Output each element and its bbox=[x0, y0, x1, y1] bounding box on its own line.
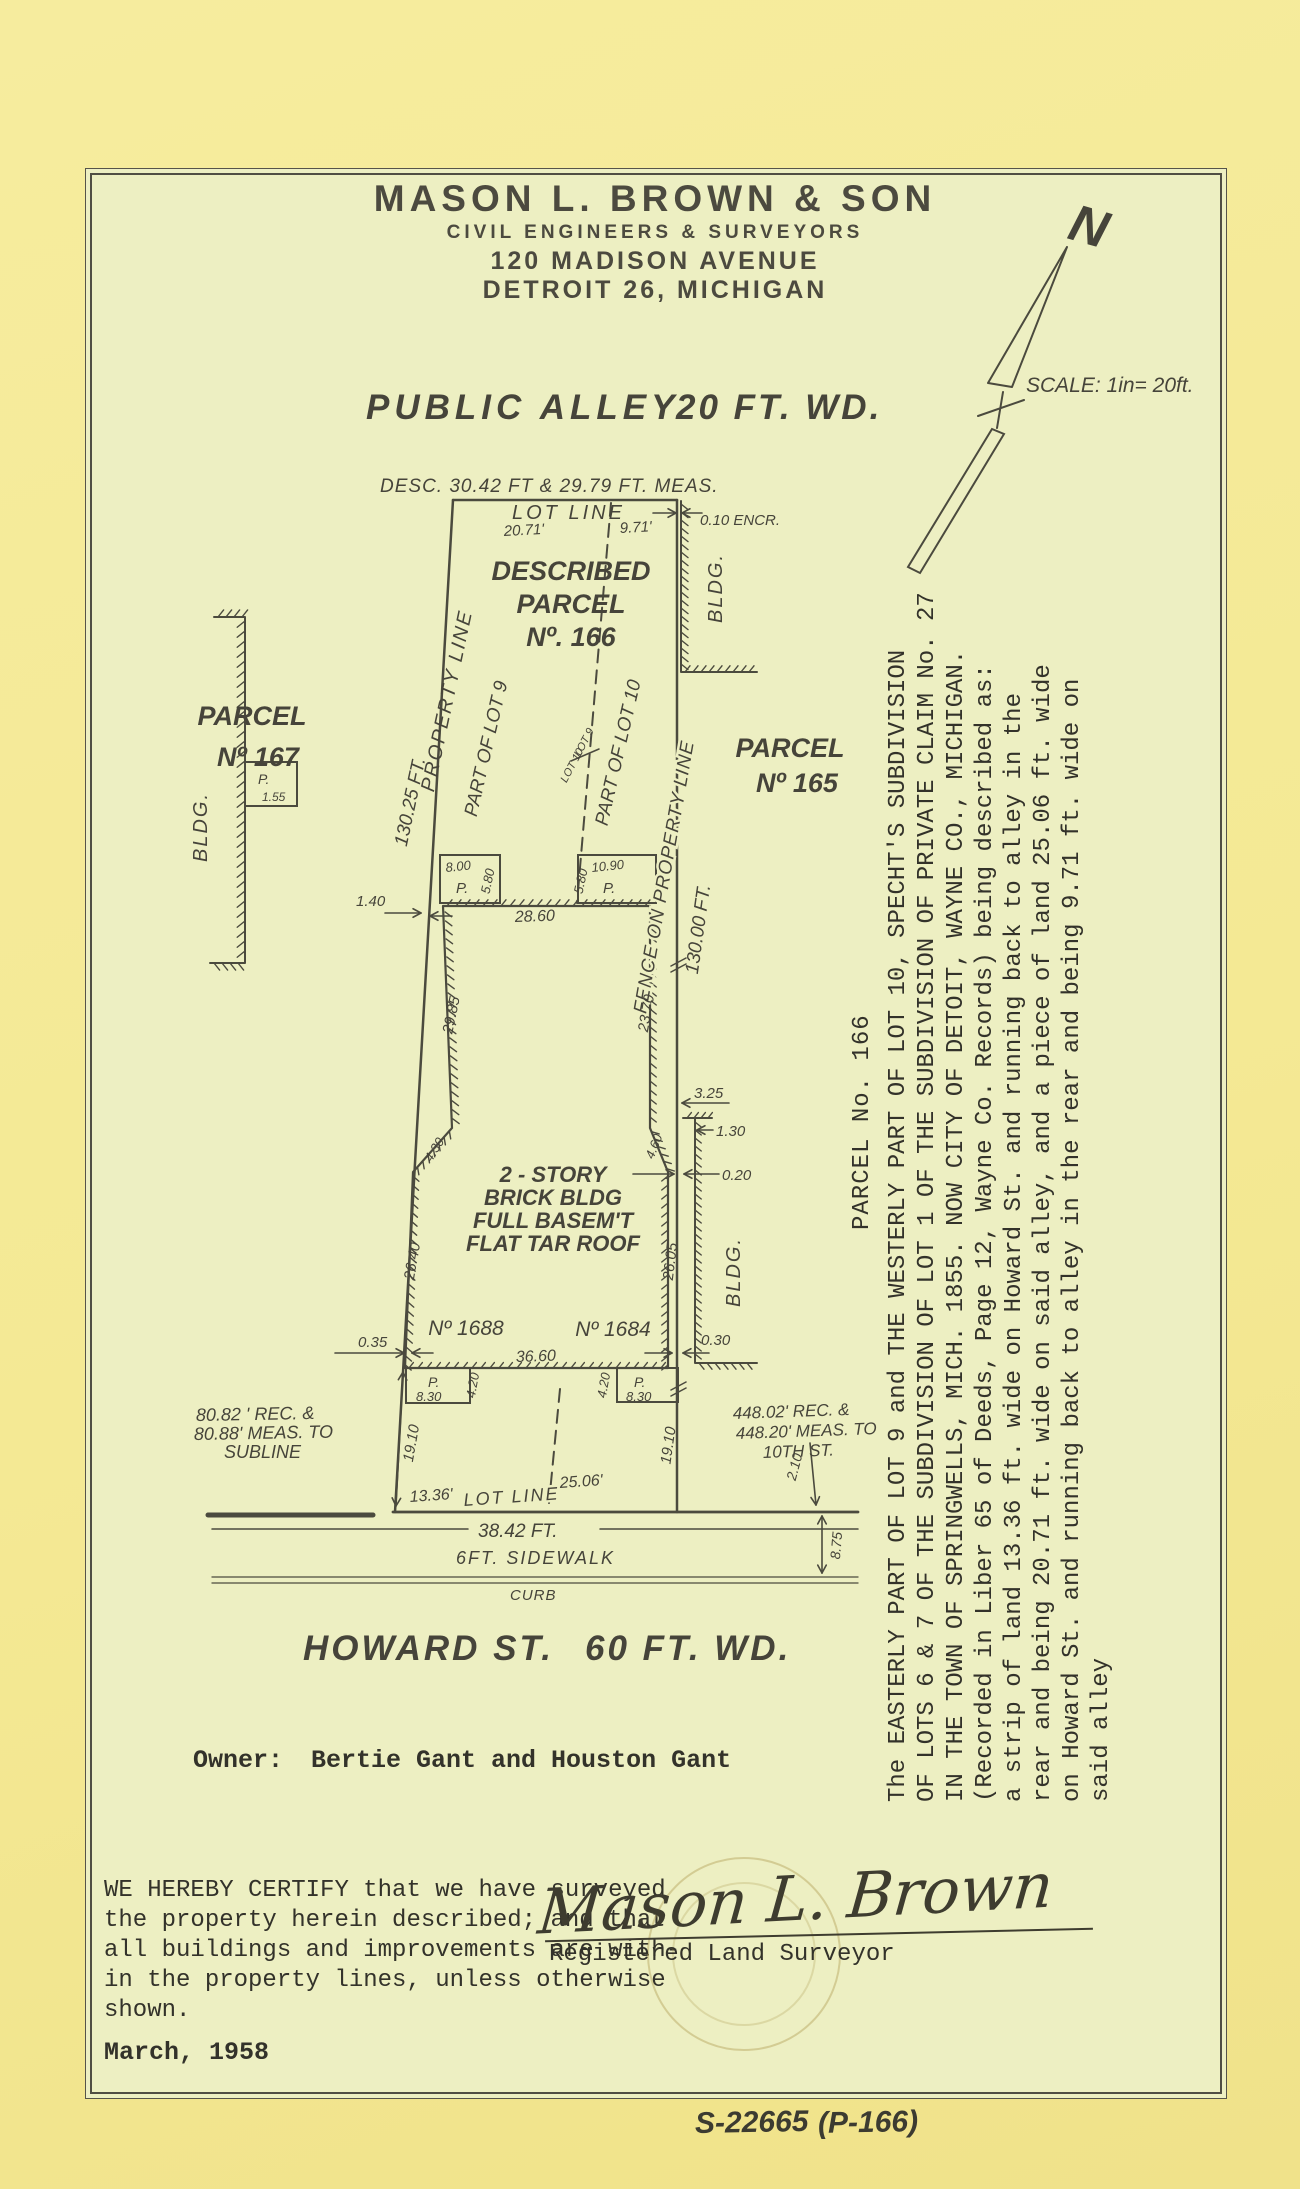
part-of-lot10-label: PART OF LOT 10 bbox=[592, 677, 646, 827]
porch-ne-width: 10.90 bbox=[591, 857, 626, 875]
hatch-tick bbox=[222, 963, 228, 970]
surveyor-title: Registered Land Surveyor bbox=[549, 1941, 895, 1968]
dim-36-60: 36.60 bbox=[516, 1348, 557, 1366]
hatch-tick bbox=[237, 791, 245, 797]
dim-1-40: 1.40 bbox=[356, 893, 386, 910]
rec-east-line1: 448.02' REC. & bbox=[732, 1400, 849, 1423]
hatch-tick bbox=[448, 984, 454, 989]
curb-label: CURB bbox=[510, 1587, 557, 1604]
building-desc-line4: FLAT TAR ROOF bbox=[466, 1231, 640, 1256]
encroachment-label: 0.10 ENCR. bbox=[700, 512, 780, 529]
hatch-tick bbox=[681, 624, 688, 630]
owner-line: Owner:Bertie Gant and Houston Gant bbox=[193, 1746, 759, 1775]
dim-25-06: 25.06' bbox=[558, 1472, 604, 1492]
hatch-tick bbox=[237, 731, 245, 737]
hatch-tick bbox=[681, 520, 688, 526]
rec-east-line2: 448.20' MEAS. TO bbox=[735, 1419, 876, 1443]
hatch-tick bbox=[681, 640, 688, 646]
hatch-tick bbox=[681, 632, 688, 638]
porch-ne-depth: 5.80 bbox=[571, 866, 591, 895]
hatch-tick bbox=[452, 1110, 458, 1115]
hatch-tick bbox=[237, 651, 245, 657]
hatch-tick bbox=[237, 621, 245, 627]
hatch-tick bbox=[681, 560, 688, 566]
hatch-tick bbox=[681, 536, 688, 542]
hatch-tick bbox=[681, 552, 688, 558]
hatch-tick bbox=[450, 1056, 456, 1061]
hatch-tick bbox=[237, 891, 245, 897]
dim-1-30: 1.30 bbox=[716, 1123, 746, 1140]
hatch-tick bbox=[238, 963, 244, 970]
hatch-tick bbox=[681, 504, 688, 510]
dim-38-42: 38.42 FT. bbox=[478, 1521, 558, 1542]
desc-meas-label: DESC. 30.42 FT & 29.79 FT. MEAS. bbox=[380, 476, 719, 497]
dim-29-85: 29.85 bbox=[439, 994, 464, 1036]
bldg-ne-label: BLDG. bbox=[705, 553, 727, 623]
hatch-tick bbox=[451, 1074, 457, 1079]
bldg-se-label: BLDG. bbox=[723, 1237, 745, 1307]
parcel-165-line1: PARCEL bbox=[735, 733, 844, 763]
owner-name: Bertie Gant and Houston Gant bbox=[311, 1746, 731, 1775]
hatch-tick bbox=[237, 631, 245, 637]
hatch-tick bbox=[237, 931, 245, 937]
described-parcel-line1: DESCRIBED bbox=[491, 556, 650, 586]
hatch-tick bbox=[237, 951, 245, 957]
hatch-tick bbox=[237, 671, 245, 677]
hatch-tick bbox=[237, 861, 245, 867]
hatch-tick bbox=[230, 963, 236, 970]
hatch-tick bbox=[237, 841, 245, 847]
hatch-tick bbox=[451, 1083, 457, 1088]
hatch-tick bbox=[234, 610, 240, 617]
hatch-tick bbox=[681, 616, 688, 622]
hatch-tick bbox=[237, 801, 245, 807]
porch-nw-label: P. bbox=[456, 880, 468, 897]
hatch-tick bbox=[447, 966, 453, 971]
job-number: S-22665 bbox=[695, 2105, 809, 2141]
hatch-tick bbox=[451, 1065, 457, 1070]
plat-drawing: DESC. 30.42 FT & 29.79 FT. MEAS. LOT LIN… bbox=[120, 455, 890, 1665]
hatch-tick bbox=[214, 963, 220, 970]
dim-20-71: 20.71' bbox=[502, 521, 545, 540]
porch-west-dim: 1.55 bbox=[262, 790, 286, 804]
scale-note: SCALE: 1in= 20ft. bbox=[1026, 374, 1194, 397]
hatch-tick bbox=[681, 528, 688, 534]
porch-ne-label: P. bbox=[603, 880, 615, 897]
porch-nw-depth: 5.80 bbox=[478, 866, 498, 895]
hatch-tick bbox=[237, 811, 245, 817]
house-number-1684: Nº 1684 bbox=[575, 1318, 650, 1341]
dim-28-60: 28.60 bbox=[514, 908, 556, 926]
arrow-head bbox=[816, 1497, 819, 1505]
dim-130-00: 130.00 FT. bbox=[682, 883, 715, 975]
hatch-tick bbox=[681, 568, 688, 574]
page-number: (P-166) bbox=[818, 2105, 919, 2141]
hatch-tick bbox=[450, 1038, 456, 1043]
hatch-tick bbox=[418, 1167, 419, 1175]
porch-sw-label: P. bbox=[428, 1374, 439, 1390]
dim-0-35: 0.35 bbox=[358, 1334, 388, 1351]
hatch-tick bbox=[446, 939, 452, 944]
hatch-tick bbox=[237, 691, 245, 697]
hatch-tick bbox=[423, 1161, 424, 1169]
hatch-tick bbox=[237, 821, 245, 827]
hatch-tick bbox=[452, 1092, 458, 1097]
part-of-lot9-label: PART OF LOT 9 bbox=[461, 679, 513, 819]
hatch-tick bbox=[681, 608, 688, 614]
dim-8-75: 8.75 bbox=[827, 1531, 845, 1560]
bldg-west-label: BLDG. bbox=[190, 792, 212, 862]
described-parcel-line2: PARCEL bbox=[516, 589, 625, 619]
legal-description-text: The EASTERLY PART OF LOT 9 and THE WESTE… bbox=[884, 512, 1116, 1802]
hatch-tick bbox=[452, 1101, 458, 1106]
rec-west-line2: 80.88' MEAS. TO bbox=[194, 1422, 333, 1444]
house-number-1688: Nº 1688 bbox=[428, 1317, 504, 1340]
parcel-166-label: PARCEL No. 166 bbox=[849, 930, 876, 1230]
rec-west-line3: SUBLINE bbox=[224, 1442, 302, 1462]
curb-lines bbox=[212, 1577, 858, 1583]
lot-line-bottom-label: LOT LINE bbox=[463, 1483, 560, 1510]
parcel-165-line2: Nº 165 bbox=[756, 768, 839, 798]
lot10-fraction-label: LOT 10 bbox=[558, 746, 586, 785]
building-desc-line3: FULL BASEM'T bbox=[473, 1208, 635, 1233]
dim-3-25: 3.25 bbox=[694, 1085, 724, 1102]
hatch-tick bbox=[237, 921, 245, 927]
dim-9-71: 9.71' bbox=[619, 518, 653, 537]
howard-street-width-label: 60 FT. WD. bbox=[585, 1629, 791, 1668]
hatch-tick bbox=[226, 610, 232, 617]
hatch-tick bbox=[237, 901, 245, 907]
hatch-tick bbox=[237, 871, 245, 877]
dimension-arrow bbox=[396, 1372, 403, 1506]
hatch-tick bbox=[237, 781, 245, 787]
certification-date: March, 1958 bbox=[104, 2038, 269, 2067]
hatch-tick bbox=[446, 948, 452, 953]
hatch-tick bbox=[453, 1119, 459, 1124]
hatch-tick bbox=[681, 576, 688, 582]
described-parcel-line3: Nº. 166 bbox=[526, 622, 616, 652]
hatch-tick bbox=[681, 592, 688, 598]
hatch-tick bbox=[681, 656, 688, 662]
hatch-tick bbox=[450, 1047, 456, 1052]
porch-se-label: P. bbox=[634, 1374, 645, 1390]
dim-0-30: 0.30 bbox=[701, 1332, 731, 1349]
dim-0-20: 0.20 bbox=[722, 1167, 752, 1184]
hatch-tick bbox=[237, 641, 245, 647]
parcel-167-line2: Nº 167 bbox=[217, 742, 301, 772]
parcel-167-line1: PARCEL bbox=[197, 701, 306, 731]
neighbor-building-west-wall bbox=[210, 617, 245, 963]
hatch-tick bbox=[681, 544, 688, 550]
neighbor-building-se-wall bbox=[683, 1118, 757, 1363]
north-arrow-ticks bbox=[978, 392, 1024, 428]
hatch-tick bbox=[237, 911, 245, 917]
building-desc-line2: BRICK BLDG bbox=[484, 1185, 622, 1210]
hatch-tick bbox=[681, 584, 688, 590]
hatch-tick bbox=[447, 957, 453, 962]
hatch-tick bbox=[681, 648, 688, 654]
hatch-tick bbox=[237, 831, 245, 837]
building-desc-line1: 2 - STORY bbox=[499, 1162, 609, 1187]
alley-width-label: 20 FT. WD. bbox=[676, 388, 882, 428]
porch-se-depth: 4.20 bbox=[594, 1371, 613, 1399]
alley-label: PUBLIC ALLEY bbox=[366, 388, 679, 428]
dim-13-36: 13.36' bbox=[409, 1486, 454, 1506]
dim-19-10-west: 19.10 bbox=[400, 1423, 423, 1464]
hatch-tick bbox=[237, 851, 245, 857]
dim-130-25: 130.25 FT. bbox=[391, 756, 430, 849]
hatch-tick bbox=[218, 610, 224, 617]
fence-tick-marks bbox=[671, 958, 686, 1396]
hatch-tick bbox=[237, 941, 245, 947]
hatch-tick bbox=[449, 1131, 450, 1139]
hatch-tick bbox=[447, 975, 453, 980]
porch-sw-depth: 4.20 bbox=[463, 1371, 482, 1399]
hatch-tick bbox=[681, 600, 688, 606]
north-arrow-shaft bbox=[988, 247, 1067, 387]
hatch-tick bbox=[237, 681, 245, 687]
porch-west-label: P. bbox=[258, 771, 269, 787]
hatch-tick bbox=[242, 610, 248, 617]
survey-document-page: MASON L. BROWN & SON CIVIL ENGINEERS & S… bbox=[0, 0, 1300, 2189]
hatch-tick bbox=[446, 930, 452, 935]
lot-division-dashed-line bbox=[549, 503, 611, 1503]
porch-nw-width: 8.00 bbox=[445, 857, 472, 875]
hatch-tick bbox=[445, 921, 451, 926]
howard-street-label: HOWARD ST. bbox=[303, 1629, 554, 1668]
hatch-tick bbox=[237, 881, 245, 887]
dim-26-40: 26.40 bbox=[401, 1241, 425, 1283]
hatch-tick bbox=[237, 661, 245, 667]
porch-sw-width: 8.30 bbox=[416, 1389, 442, 1404]
north-n-glyph: N bbox=[1063, 194, 1116, 261]
porch-se-width: 8.30 bbox=[626, 1389, 652, 1404]
owner-label: Owner: bbox=[193, 1746, 283, 1775]
sidewalk-label: 6FT. SIDEWALK bbox=[456, 1548, 615, 1568]
